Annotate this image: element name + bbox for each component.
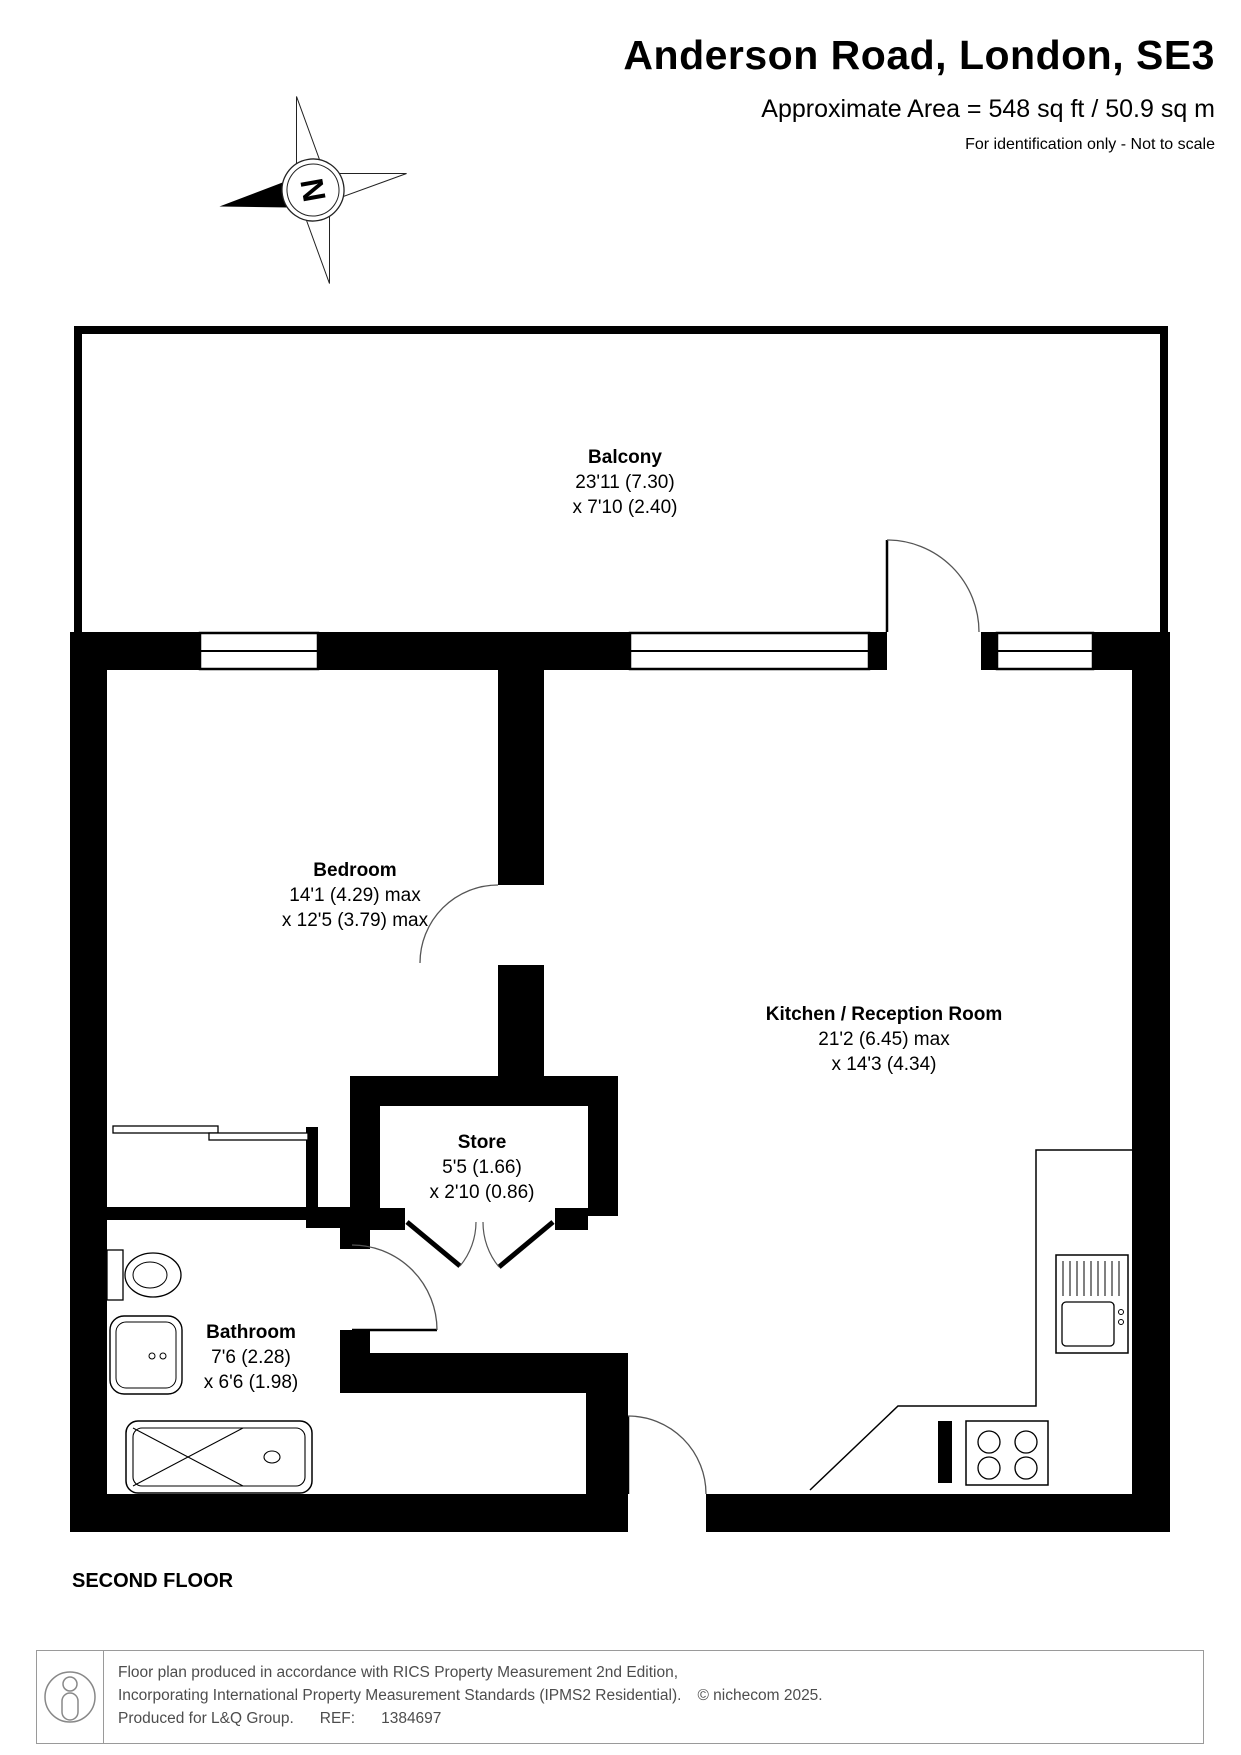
room-dimension: x 12'5 (3.79) max — [282, 908, 428, 933]
wall-segment — [555, 1208, 588, 1230]
room-dimension: 14'1 (4.29) max — [282, 883, 428, 908]
wall-segment — [74, 326, 82, 632]
wall-segment — [588, 1076, 618, 1216]
wall-segment — [981, 632, 997, 670]
page-title: Anderson Road, London, SE3 — [623, 32, 1215, 79]
wall-segment — [74, 326, 1168, 334]
wall-segment — [318, 632, 630, 670]
room-dimension: x 6'6 (1.98) — [204, 1370, 298, 1395]
compass-point-east — [285, 94, 320, 165]
room-dimension: 21'2 (6.45) max — [766, 1027, 1002, 1052]
room-dimension: 7'6 (2.28) — [204, 1345, 298, 1370]
footer-ref-label: REF: — [320, 1710, 355, 1727]
room-label-bathroom: Bathroom 7'6 (2.28) x 6'6 (1.98) — [204, 1320, 298, 1395]
bedroom-door — [420, 885, 498, 963]
compass-point-south — [338, 162, 409, 197]
room-label-store: Store 5'5 (1.66) x 2'10 (0.86) — [429, 1130, 534, 1205]
bathroom-door — [352, 1245, 437, 1330]
wall-segment — [706, 1494, 1170, 1532]
store-double-doors — [407, 1222, 553, 1267]
room-label-bedroom: Bedroom 14'1 (4.29) max x 12'5 (3.79) ma… — [282, 858, 428, 933]
balcony-door — [887, 540, 979, 632]
header: Anderson Road, London, SE3 Approximate A… — [623, 32, 1215, 154]
room-name: Kitchen / Reception Room — [766, 1002, 1002, 1027]
wall-segment — [1132, 670, 1170, 1532]
room-dimension: 23'11 (7.30) — [572, 470, 677, 495]
wall-segment — [1093, 632, 1170, 670]
room-name: Balcony — [572, 445, 677, 470]
kitchen-fixtures — [810, 1150, 1132, 1490]
basin — [110, 1316, 182, 1394]
entrance-door — [628, 1416, 706, 1494]
room-name: Bathroom — [204, 1320, 298, 1345]
footer-text: Floor plan produced in accordance with R… — [104, 1651, 1203, 1743]
room-dimension: x 7'10 (2.40) — [572, 495, 677, 520]
room-name: Store — [429, 1130, 534, 1155]
room-dimension: 5'5 (1.66) — [429, 1155, 534, 1180]
room-name: Bedroom — [282, 858, 428, 883]
footer-standards-text: Incorporating International Property Mea… — [118, 1687, 681, 1704]
compass: N — [203, 80, 423, 300]
room-dimension: x 2'10 (0.86) — [429, 1180, 534, 1205]
wall-segment — [586, 1393, 628, 1494]
compass-north-arrow — [217, 182, 288, 219]
footer-line-1: Floor plan produced in accordance with R… — [118, 1661, 1193, 1684]
wall-segment — [70, 632, 107, 1532]
disclaimer-note: For identification only - Not to scale — [623, 136, 1215, 154]
kitchen-window-left — [630, 633, 869, 669]
wall-segment — [70, 1494, 628, 1532]
wall-segment — [350, 1076, 380, 1216]
footer-ref-number: 1384697 — [381, 1710, 441, 1727]
wall-segment — [869, 632, 887, 670]
room-label-balcony: Balcony 23'11 (7.30) x 7'10 (2.40) — [572, 445, 677, 520]
floor-level-label: SECOND FLOOR — [72, 1570, 233, 1593]
wall-segment — [306, 1127, 318, 1220]
wall-segment — [70, 1207, 318, 1220]
kitchen-hob — [938, 1421, 1048, 1485]
toilet — [107, 1250, 181, 1300]
kitchen-sink — [1056, 1255, 1128, 1353]
kitchen-window-right — [997, 633, 1093, 669]
wardrobe-sliding-doors — [113, 1126, 308, 1140]
wall-segment — [340, 1207, 370, 1249]
room-dimension: x 14'3 (4.34) — [766, 1052, 1002, 1077]
wall-segment — [340, 1330, 370, 1353]
footer-line-3: Produced for L&Q Group.REF:1384697 — [118, 1707, 1193, 1730]
footer-icon-cell — [37, 1651, 104, 1743]
room-label-kitchen: Kitchen / Reception Room 21'2 (6.45) max… — [766, 1002, 1002, 1077]
wall-segment — [1160, 326, 1168, 632]
compass-point-west — [306, 215, 341, 286]
footer-produced-for: Produced for L&Q Group. — [118, 1710, 294, 1727]
person-icon — [42, 1669, 98, 1725]
floorplan-page: N Anderson Road, London, SE3 Approximate… — [0, 0, 1241, 1755]
area-summary: Approximate Area = 548 sq ft / 50.9 sq m — [623, 95, 1215, 124]
footer-copyright: © nichecom 2025. — [697, 1687, 822, 1704]
footer: Floor plan produced in accordance with R… — [36, 1650, 1204, 1744]
bedroom-window — [200, 633, 318, 669]
floorplan-drawing: N — [0, 0, 1241, 1755]
wall-segment — [498, 670, 544, 885]
bathtub — [126, 1421, 312, 1493]
wall-segment — [340, 1353, 628, 1393]
footer-line-2: Incorporating International Property Mea… — [118, 1684, 1193, 1707]
wall-segment — [350, 1076, 618, 1106]
